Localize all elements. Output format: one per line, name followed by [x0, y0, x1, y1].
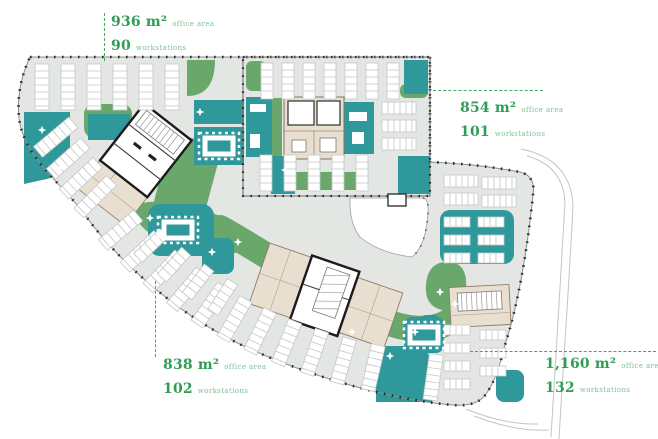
leader-line-top-right — [433, 90, 543, 91]
workstations-label: workstations — [580, 379, 631, 401]
annotation-top-right: 854 m²office area 101workstations — [460, 97, 563, 145]
floor-plan-page: 936 m²office area 90workstations 854 m²o… — [0, 0, 658, 439]
workstations-value: 132 — [545, 377, 575, 399]
area-value: 854 m² — [460, 97, 516, 119]
workstations-value: 102 — [163, 378, 193, 400]
leader-line-bottom-left — [155, 281, 156, 357]
workstations-value: 90 — [111, 35, 131, 57]
workstations-value: 101 — [460, 121, 490, 143]
area-label: office area — [621, 355, 658, 377]
area-label: office area — [172, 13, 214, 35]
annotation-top-left: 936 m²office area 90workstations — [111, 11, 214, 59]
annotation-bottom-right: 1,160 m²office area 132workstations — [545, 353, 658, 401]
area-value: 838 m² — [163, 354, 219, 376]
workstations-label: workstations — [495, 123, 546, 145]
area-value: 1,160 m² — [545, 353, 616, 375]
workstations-label: workstations — [136, 37, 187, 59]
area-label: office area — [521, 99, 563, 121]
annotation-bottom-left: 838 m²office area 102workstations — [163, 354, 266, 402]
area-value: 936 m² — [111, 11, 167, 33]
area-label: office area — [224, 356, 266, 378]
building-core — [284, 97, 344, 159]
leader-line-bottom-right — [470, 351, 656, 352]
entrance — [388, 194, 406, 206]
workstations-label: workstations — [198, 380, 249, 402]
leader-line-top-left — [104, 13, 105, 61]
stair-core-right — [449, 284, 511, 327]
